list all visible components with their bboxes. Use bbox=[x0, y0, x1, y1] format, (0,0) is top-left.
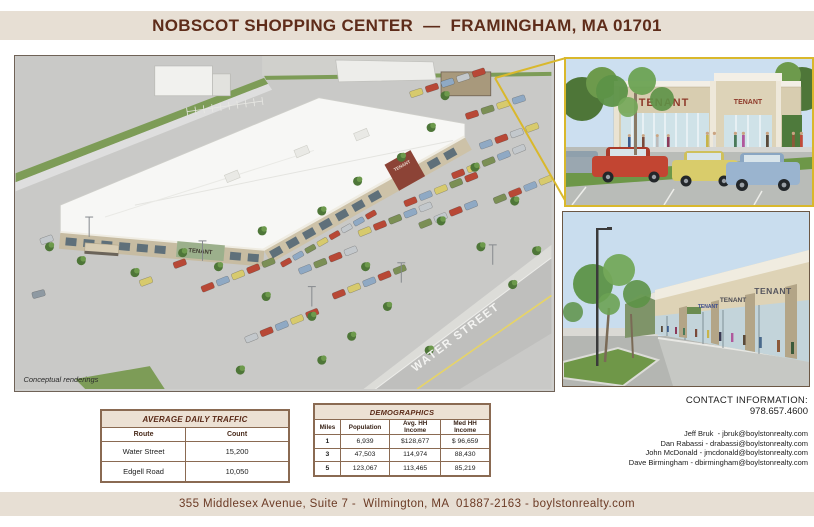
miles-cell: 1 bbox=[314, 435, 340, 449]
agent-contact-line: Dan Rabassi - drabassi@boylstonrealty.co… bbox=[548, 439, 808, 449]
footer-bar: 355 Middlesex Avenue, Suite 7 - Wilmingt… bbox=[0, 492, 814, 516]
page-title: NOBSCOT SHOPPING CENTER — FRAMINGHAM, MA… bbox=[0, 11, 814, 40]
column-header: Med HH Income bbox=[441, 420, 490, 435]
contact-heading: CONTACT INFORMATION: bbox=[548, 395, 808, 406]
storefront-closeup-rendering: TENANT TENANT bbox=[564, 57, 814, 207]
table-row: 1 6,939 $128,677 $ 96,659 bbox=[314, 435, 490, 449]
main-aerial-rendering: TENANT TENANT bbox=[14, 55, 555, 392]
avg-income-cell: 114,974 bbox=[390, 448, 441, 462]
streetview-rendering: TENANT TENANT TENANT bbox=[562, 211, 810, 387]
med-income-cell: $ 96,659 bbox=[441, 435, 490, 449]
header-bar: NOBSCOT SHOPPING CENTER — FRAMINGHAM, MA… bbox=[0, 11, 814, 40]
conceptual-renderings-note: Conceptual renderings bbox=[24, 375, 99, 384]
agent-contact-line: John McDonald - jmcdonald@boylstonrealty… bbox=[548, 448, 808, 458]
flyer-page: NOBSCOT SHOPPING CENTER — FRAMINGHAM, MA… bbox=[0, 0, 814, 527]
count-cell: 10,050 bbox=[186, 462, 289, 483]
table-row: Water Street 15,200 bbox=[101, 442, 289, 462]
table-title: DEMOGRAPHICS bbox=[314, 404, 490, 420]
route-cell: Edgell Road bbox=[101, 462, 186, 483]
contact-section: CONTACT INFORMATION: 978.657.4600 Jeff B… bbox=[548, 395, 808, 467]
med-income-cell: 88,430 bbox=[441, 448, 490, 462]
demographics-table: DEMOGRAPHICS Miles Population Avg. HH In… bbox=[313, 403, 491, 477]
route-cell: Water Street bbox=[101, 442, 186, 462]
table-title: AVERAGE DAILY TRAFFIC bbox=[101, 410, 289, 428]
tenant-sign-label: TENANT bbox=[734, 99, 763, 106]
adjacent-building bbox=[336, 60, 436, 82]
miles-cell: 3 bbox=[314, 448, 340, 462]
count-cell: 15,200 bbox=[186, 442, 289, 462]
tenant-sign-label: TENANT bbox=[754, 286, 792, 296]
miles-cell: 5 bbox=[314, 462, 340, 476]
population-cell: 6,939 bbox=[340, 435, 389, 449]
table-row: 3 47,503 114,974 88,430 bbox=[314, 448, 490, 462]
aerial-rendering-canvas: TENANT TENANT bbox=[15, 56, 552, 389]
pilaster bbox=[745, 293, 755, 352]
column-header: Miles bbox=[314, 420, 340, 435]
avg-income-cell: $128,677 bbox=[390, 435, 441, 449]
med-income-cell: 85,219 bbox=[441, 462, 490, 476]
column-header: Route bbox=[101, 428, 186, 442]
avg-income-cell: 113,465 bbox=[390, 462, 441, 476]
table-row: 5 123,067 113,465 85,219 bbox=[314, 462, 490, 476]
population-cell: 123,067 bbox=[340, 462, 389, 476]
agent-contact-line: Jeff Bruk - jbruk@boylstonrealty.com bbox=[548, 429, 808, 439]
agent-contact-line: Dave Birmingham - dbirmingham@boylstonre… bbox=[548, 458, 808, 468]
table-row: Edgell Road 10,050 bbox=[101, 462, 289, 483]
contact-phone: 978.657.4600 bbox=[548, 406, 808, 417]
tenant-sign-label: TENANT bbox=[720, 297, 746, 304]
tenant-sign-label: TENANT bbox=[698, 304, 718, 310]
footer-address: 355 Middlesex Avenue, Suite 7 - Wilmingt… bbox=[0, 492, 814, 516]
column-header: Count bbox=[186, 428, 289, 442]
column-header: Population bbox=[340, 420, 389, 435]
population-cell: 47,503 bbox=[340, 448, 389, 462]
average-daily-traffic-table: AVERAGE DAILY TRAFFIC Route Count Water … bbox=[100, 409, 290, 483]
column-header: Avg. HH Income bbox=[390, 420, 441, 435]
